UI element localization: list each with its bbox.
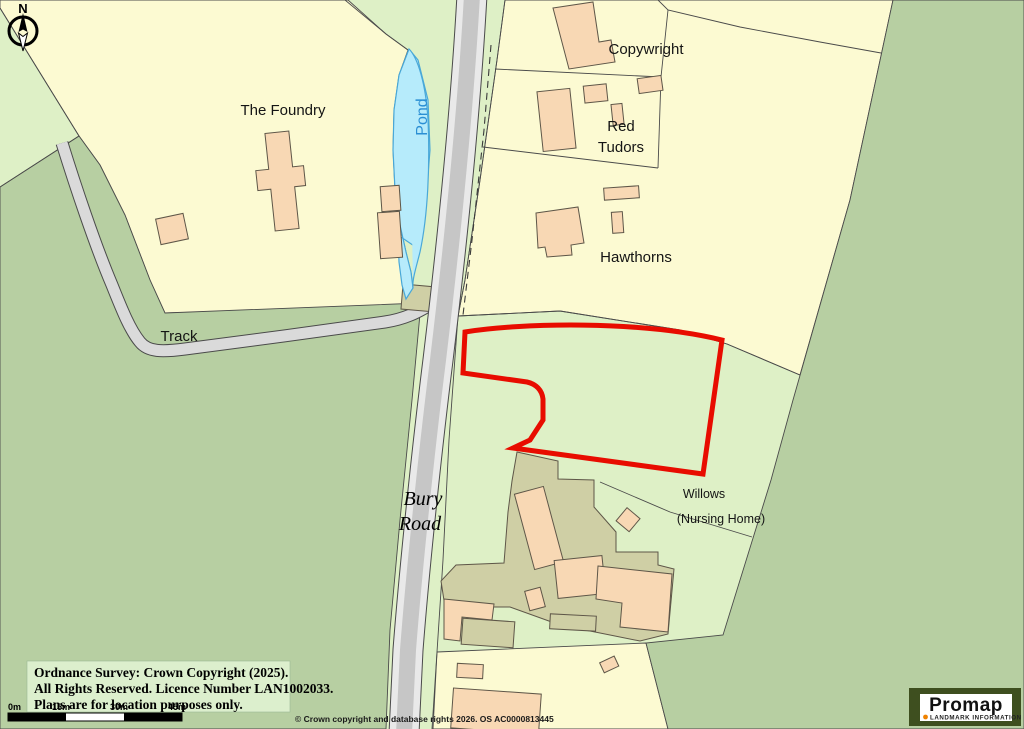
promap-logo: Promap LANDMARK INFORMATION bbox=[909, 688, 1022, 726]
legend-line: All Rights Reserved. Licence Number LAN1… bbox=[34, 681, 333, 696]
scale-tick-label: 45m bbox=[168, 702, 186, 712]
legend-line: Ordnance Survey: Crown Copyright (2025). bbox=[34, 665, 288, 680]
promap-wordmark: Promap bbox=[929, 695, 1003, 716]
building bbox=[604, 186, 640, 200]
outbuilding bbox=[461, 618, 515, 648]
label-red-tudors: Red bbox=[607, 118, 635, 135]
os-credit: © Crown copyright and database rights 20… bbox=[295, 714, 554, 724]
map-canvas: The Foundry Pond Copywright Red Tudors H… bbox=[0, 0, 1024, 729]
label-bury-road: Bury bbox=[404, 488, 443, 510]
building bbox=[611, 212, 623, 234]
label-bury-road: Road bbox=[398, 513, 442, 535]
promap-tagline: LANDMARK INFORMATION bbox=[930, 715, 1022, 722]
building bbox=[583, 84, 608, 103]
building bbox=[377, 211, 402, 258]
label-foundry: The Foundry bbox=[240, 102, 326, 119]
scale-tick-label: 15m bbox=[52, 702, 70, 712]
scale-bar-segment bbox=[124, 713, 182, 721]
outbuilding bbox=[550, 614, 597, 631]
building-red-tudors bbox=[537, 88, 576, 151]
building bbox=[380, 185, 401, 211]
building bbox=[637, 75, 663, 93]
label-pond: Pond bbox=[414, 98, 431, 135]
label-copywright: Copywright bbox=[608, 41, 684, 58]
label-nursing-home: (Nursing Home) bbox=[677, 512, 765, 526]
label-willows: Willows bbox=[683, 487, 725, 501]
promap-orange-dot-icon bbox=[923, 715, 928, 720]
building bbox=[156, 213, 189, 244]
scale-tick-label: 0m bbox=[8, 702, 21, 712]
building bbox=[457, 663, 484, 678]
compass-letter: N bbox=[18, 1, 27, 16]
label-hawthorns: Hawthorns bbox=[600, 249, 672, 266]
scale-bar-segment bbox=[8, 713, 66, 721]
map-plan: The Foundry Pond Copywright Red Tudors H… bbox=[0, 0, 1024, 729]
scale-tick-label: 30m bbox=[110, 702, 128, 712]
label-track: Track bbox=[161, 328, 198, 345]
label-red-tudors: Tudors bbox=[598, 139, 644, 156]
